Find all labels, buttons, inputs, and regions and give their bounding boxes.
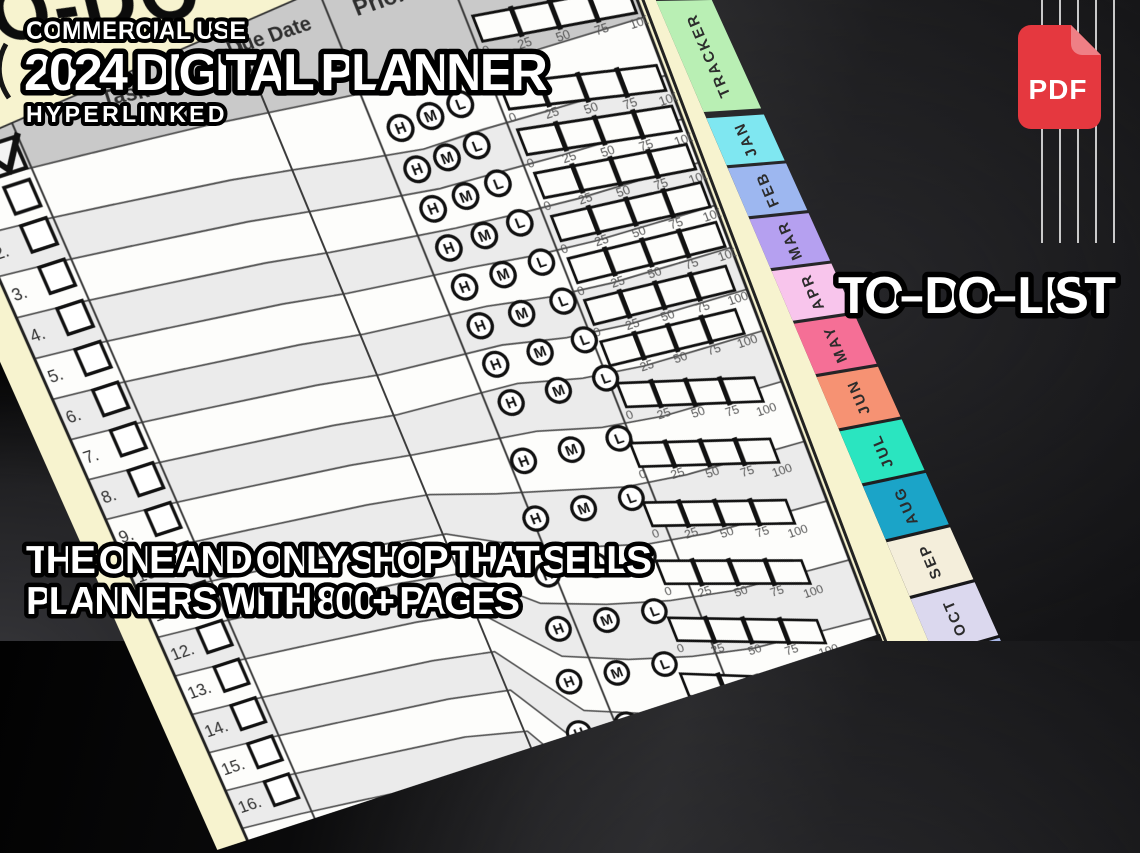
svg-text:M: M [619, 716, 636, 734]
svg-text:L: L [685, 806, 699, 823]
svg-text:L: L [677, 758, 691, 775]
svg-text:75: 75 [811, 757, 828, 773]
svg-text:M: M [628, 766, 645, 784]
svg-text:HYPERLINKED: HYPERLINKED [26, 101, 228, 127]
svg-text:M: M [637, 814, 654, 831]
svg-text:THE ONE AND ONLY SHOP THAT SEL: THE ONE AND ONLY SHOP THAT SELLS [26, 539, 652, 582]
svg-text:100: 100 [847, 758, 871, 777]
svg-text:0: 0 [687, 696, 699, 711]
svg-text:75: 75 [825, 813, 842, 829]
svg-text:L: L [668, 708, 682, 725]
svg-text:25: 25 [721, 697, 739, 714]
svg-text:H: H [581, 775, 596, 792]
svg-text:25: 25 [734, 752, 751, 768]
svg-text:PLANNERS WITH 800+ PAGES: PLANNERS WITH 800+ PAGES [26, 580, 520, 623]
svg-text:2024 DIGITAL PLANNER: 2024 DIGITAL PLANNER [24, 44, 548, 102]
svg-text:0: 0 [698, 751, 710, 766]
svg-text:100: 100 [862, 815, 886, 833]
svg-text:50: 50 [786, 810, 804, 826]
svg-text:25: 25 [746, 807, 763, 823]
svg-text:75: 75 [797, 700, 814, 717]
svg-text:COMMERCIAL USE: COMMERCIAL USE [26, 17, 247, 45]
svg-text:100: 100 [832, 700, 856, 719]
svg-text:H: H [590, 823, 605, 840]
svg-text:0: 0 [709, 804, 721, 818]
svg-text:TO–DO–LIST: TO–DO–LIST [838, 267, 1116, 325]
svg-text:50: 50 [773, 754, 791, 771]
svg-text:50: 50 [759, 698, 777, 715]
